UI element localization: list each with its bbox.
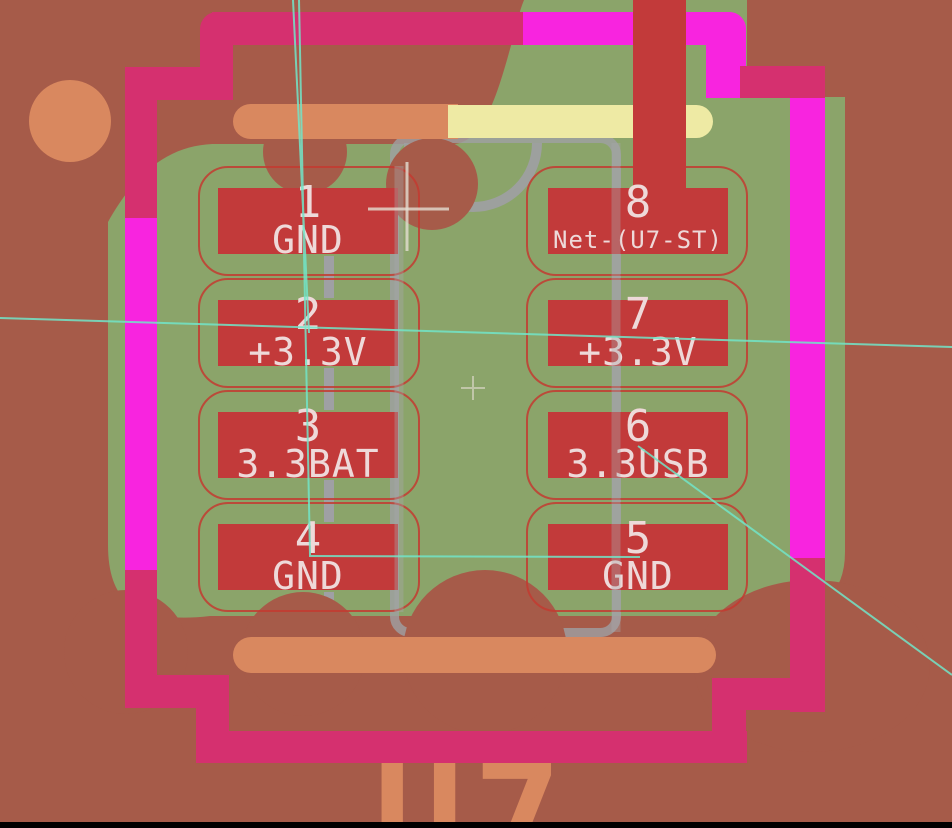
pad-4[interactable]: 4 GND [218,524,398,590]
pad-net-label: +3.3V [578,334,697,370]
pad-number: 6 [625,408,652,446]
silk-right-edge [790,66,825,102]
silk-left-edge [125,218,157,574]
pad-3[interactable]: 3 3.3BAT [218,412,398,478]
pad-net-label: GND [272,558,344,594]
pad-1[interactable]: 1 GND [218,188,398,254]
silk-bottom-left-step [196,675,229,740]
pad-5[interactable]: 5 GND [548,524,728,590]
pad-number: 3 [295,408,322,446]
pad-number: 5 [625,520,652,558]
pad-2[interactable]: 2 +3.3V [218,300,398,366]
pad-net-label: GND [602,558,674,594]
silk-top-band [212,12,526,45]
pad-net-label: GND [272,222,344,258]
pad-number: 4 [295,520,322,558]
pad-7[interactable]: 7 +3.3V [548,300,728,366]
canvas-edge-strip [0,822,952,828]
silk-left-edge [125,67,157,222]
pad-6[interactable]: 6 3.3USB [548,412,728,478]
pcb-canvas[interactable]: U7 1 GND 2 +3.3V 3 3.3BAT 4 GND [0,0,952,828]
pad-8[interactable]: 8 Net-(U7-ST) [548,188,728,254]
pad-net-label: +3.3V [248,334,367,370]
pad-number: 1 [295,184,322,222]
copper-dot[interactable] [29,80,111,162]
silk-bottom-band [196,731,747,763]
pad-number: 7 [625,296,652,334]
silk-right-edge [790,98,825,562]
horizontal-trace-top[interactable] [233,104,458,139]
pad-net-label: 3.3BAT [236,446,379,482]
horizontal-trace-bottom[interactable] [233,637,716,673]
trace-to-pad8[interactable] [633,0,686,205]
silk-top-right-step [740,66,794,98]
pad-net-label: Net-(U7-ST) [553,222,723,258]
pad-number: 8 [625,184,652,222]
pad-number: 2 [295,296,322,334]
pad-net-label: 3.3USB [566,446,709,482]
